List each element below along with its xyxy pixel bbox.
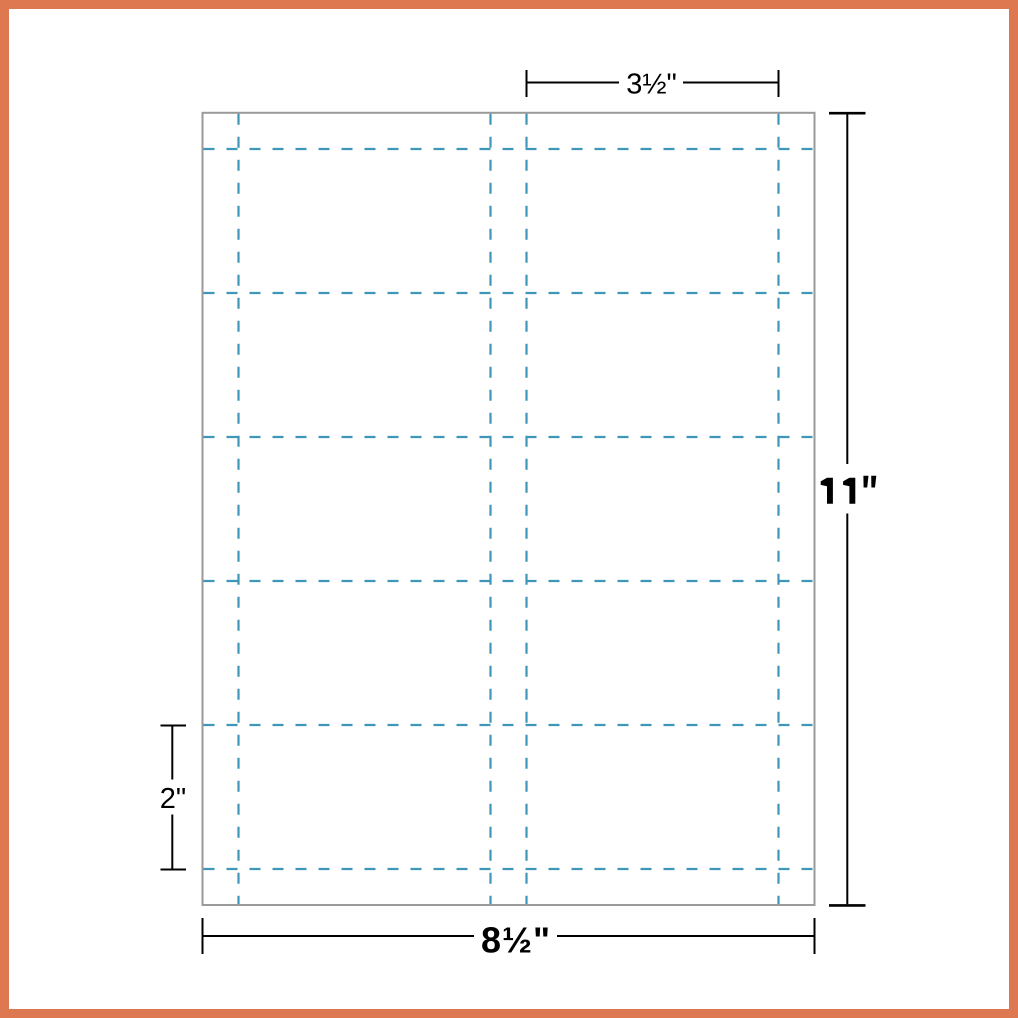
svg-text:8½": 8½": [481, 919, 551, 960]
svg-text:3½": 3½": [626, 68, 677, 100]
svg-text:2": 2": [160, 783, 186, 815]
